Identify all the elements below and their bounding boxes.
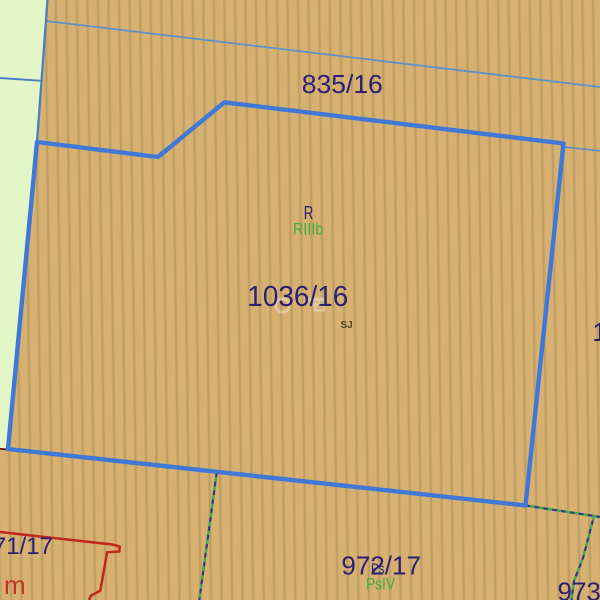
svg-text:1036/16: 1036/16 <box>247 281 348 313</box>
svg-text:971/17: 971/17 <box>0 533 53 560</box>
svg-text:SJ: SJ <box>341 320 353 331</box>
svg-text:835/16: 835/16 <box>302 69 383 99</box>
svg-text:973: 973 <box>558 576 600 600</box>
svg-text:10: 10 <box>592 317 600 347</box>
svg-text:PsIV: PsIV <box>366 575 396 594</box>
svg-text:RIIIb: RIIIb <box>293 220 323 239</box>
svg-text:m: m <box>4 570 26 600</box>
